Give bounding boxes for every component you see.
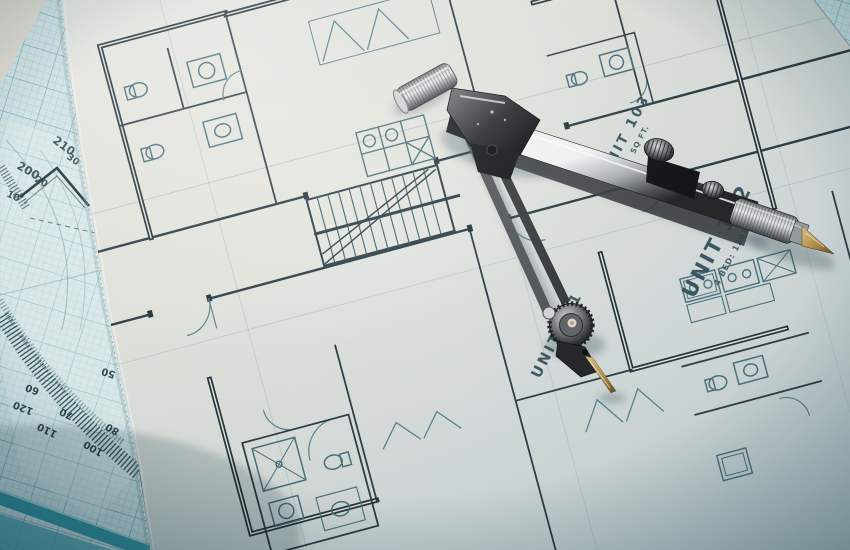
- photo-stage: 210 30 200 20 10 60 120 70 110 80 100 50: [0, 0, 850, 550]
- light-glow-overlay: [0, 0, 850, 550]
- blueprint-photo: 210 30 200 20 10 60 120 70 110 80 100 50: [0, 0, 850, 550]
